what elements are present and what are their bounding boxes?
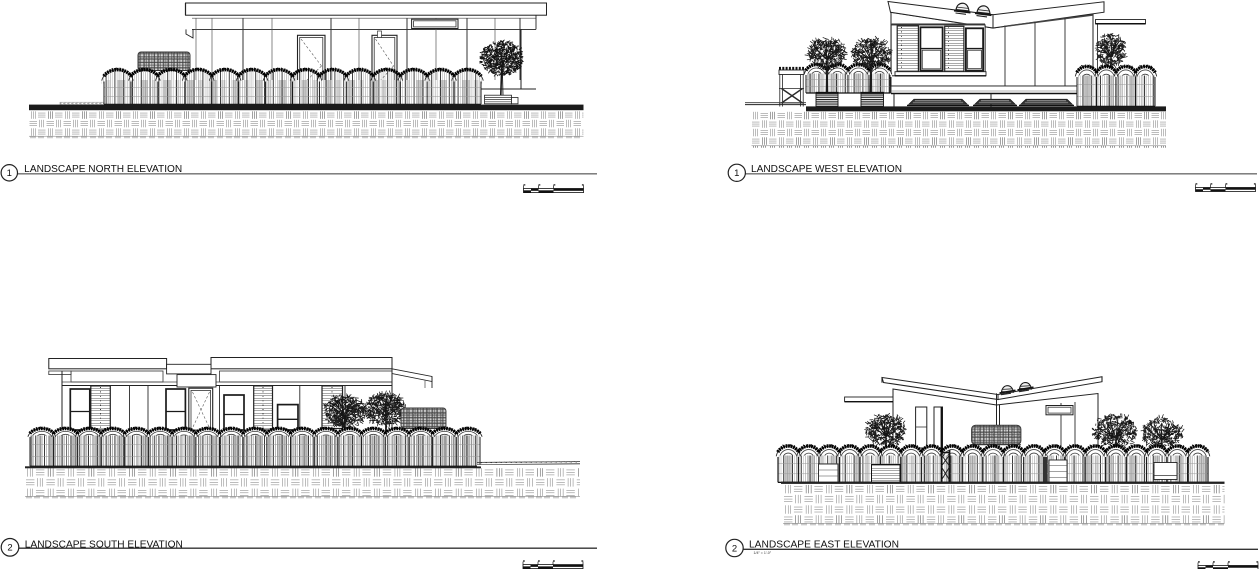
svg-text:1: 1	[734, 168, 739, 179]
svg-text:LANDSCAPE NORTH ELEVATION: LANDSCAPE NORTH ELEVATION	[24, 164, 182, 175]
svg-text:LANDSCAPE WEST ELEVATION: LANDSCAPE WEST ELEVATION	[751, 164, 902, 175]
svg-text:1/4″ = 1′-0″: 1/4″ = 1′-0″	[754, 551, 772, 555]
svg-text:2: 2	[732, 543, 737, 554]
svg-text:1: 1	[7, 168, 12, 179]
svg-text:LANDSCAPE EAST ELEVATION: LANDSCAPE EAST ELEVATION	[749, 540, 899, 551]
svg-text:LANDSCAPE SOUTH ELEVATION: LANDSCAPE SOUTH ELEVATION	[25, 540, 183, 551]
svg-text:2: 2	[7, 543, 12, 554]
